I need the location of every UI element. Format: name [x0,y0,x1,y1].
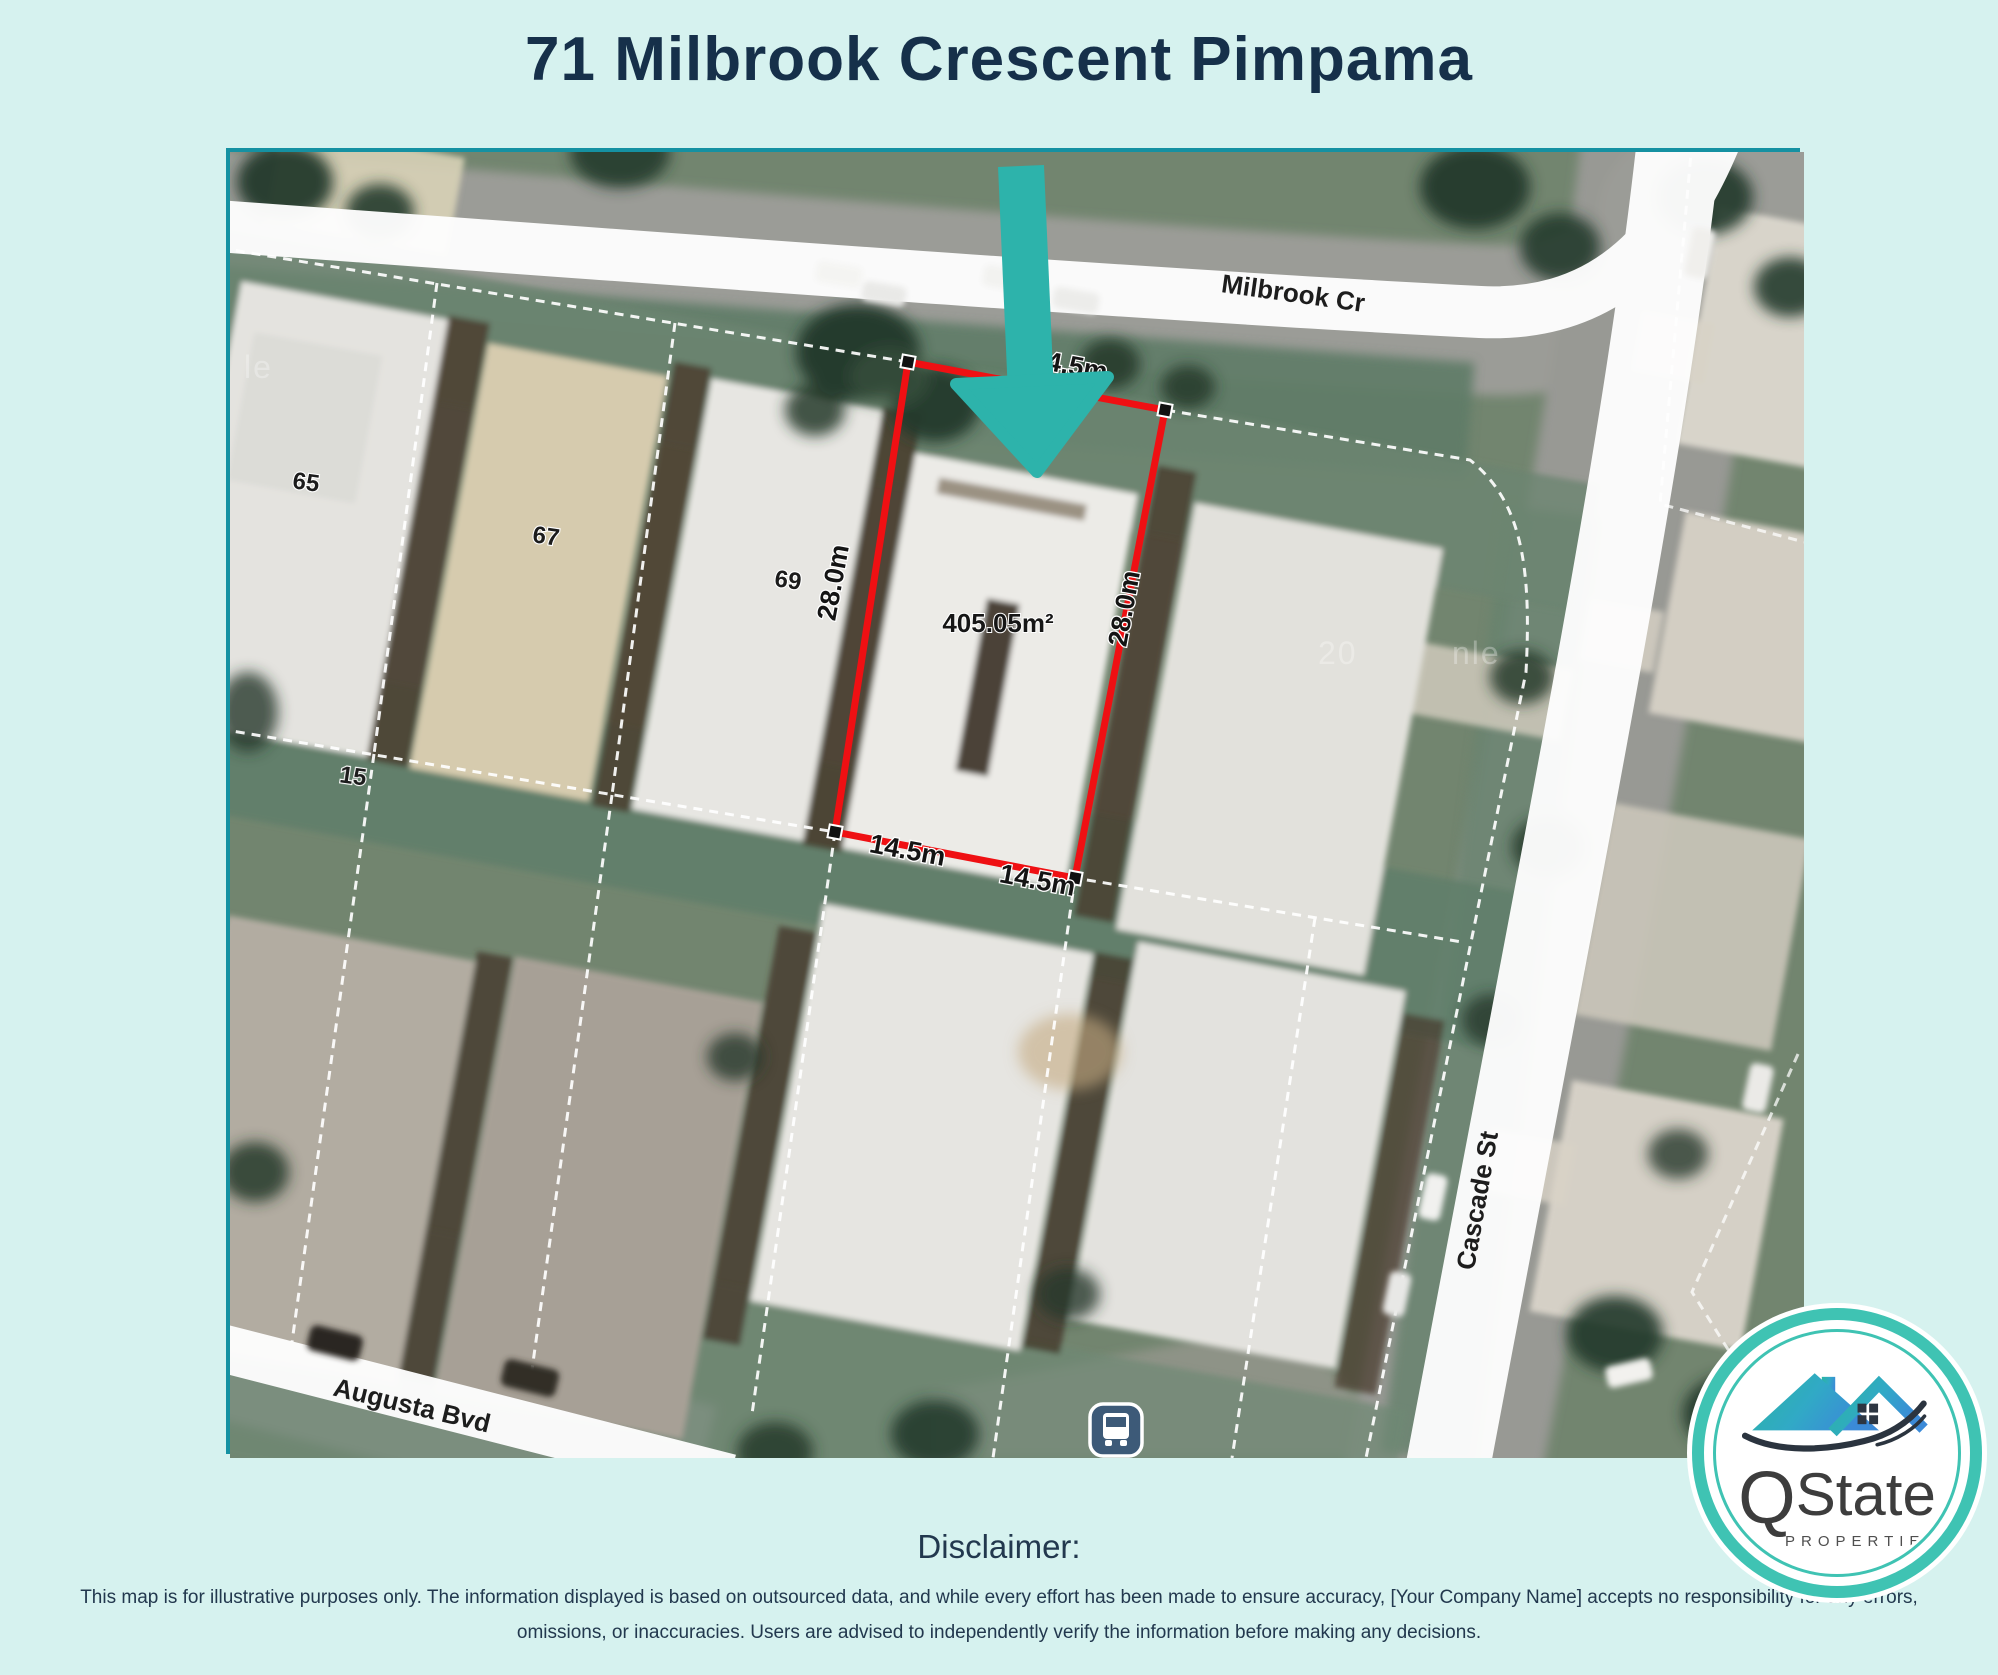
logo-tagline: PROPERTIES [1785,1533,1941,1550]
disclaimer-section: Disclaimer: This map is for illustrative… [0,1528,1998,1650]
house-roof-icon [1742,1359,1932,1459]
house-number-15: 15 [338,761,368,791]
aerial-map-image: Milbrook Cr Cascade St Augusta Bvd le 20 [230,152,1804,1458]
parcel-area-label: 405.05m² [942,608,1054,638]
page-title: 71 Milbrook Crescent Pimpama [0,24,1998,95]
disclaimer-heading: Disclaimer: [0,1528,1998,1566]
disclaimer-body: This map is for illustrative purposes on… [44,1580,1954,1650]
map-watermark-fragment-right: nle [1452,635,1501,671]
map-watermark-fragment-mid: 20 [1318,635,1358,671]
bus-stop-icon [1090,1404,1142,1456]
flyer-page: 71 Milbrook Crescent Pimpama [0,0,1998,1675]
logo-brand-q: Q [1738,1456,1796,1539]
map-watermark-fragment-left: le [244,349,273,385]
map-frame: Milbrook Cr Cascade St Augusta Bvd le 20 [226,148,1800,1454]
logo-inner: QState PROPERTIES [1719,1335,1955,1571]
house-number-65: 65 [291,467,321,497]
house-number-67: 67 [531,521,561,551]
logo-brand-name: QState [1738,1461,1936,1535]
house-number-69: 69 [773,565,803,595]
qstate-properties-logo: QState PROPERTIES [1687,1303,1987,1603]
logo-brand-rest: State [1796,1461,1936,1528]
